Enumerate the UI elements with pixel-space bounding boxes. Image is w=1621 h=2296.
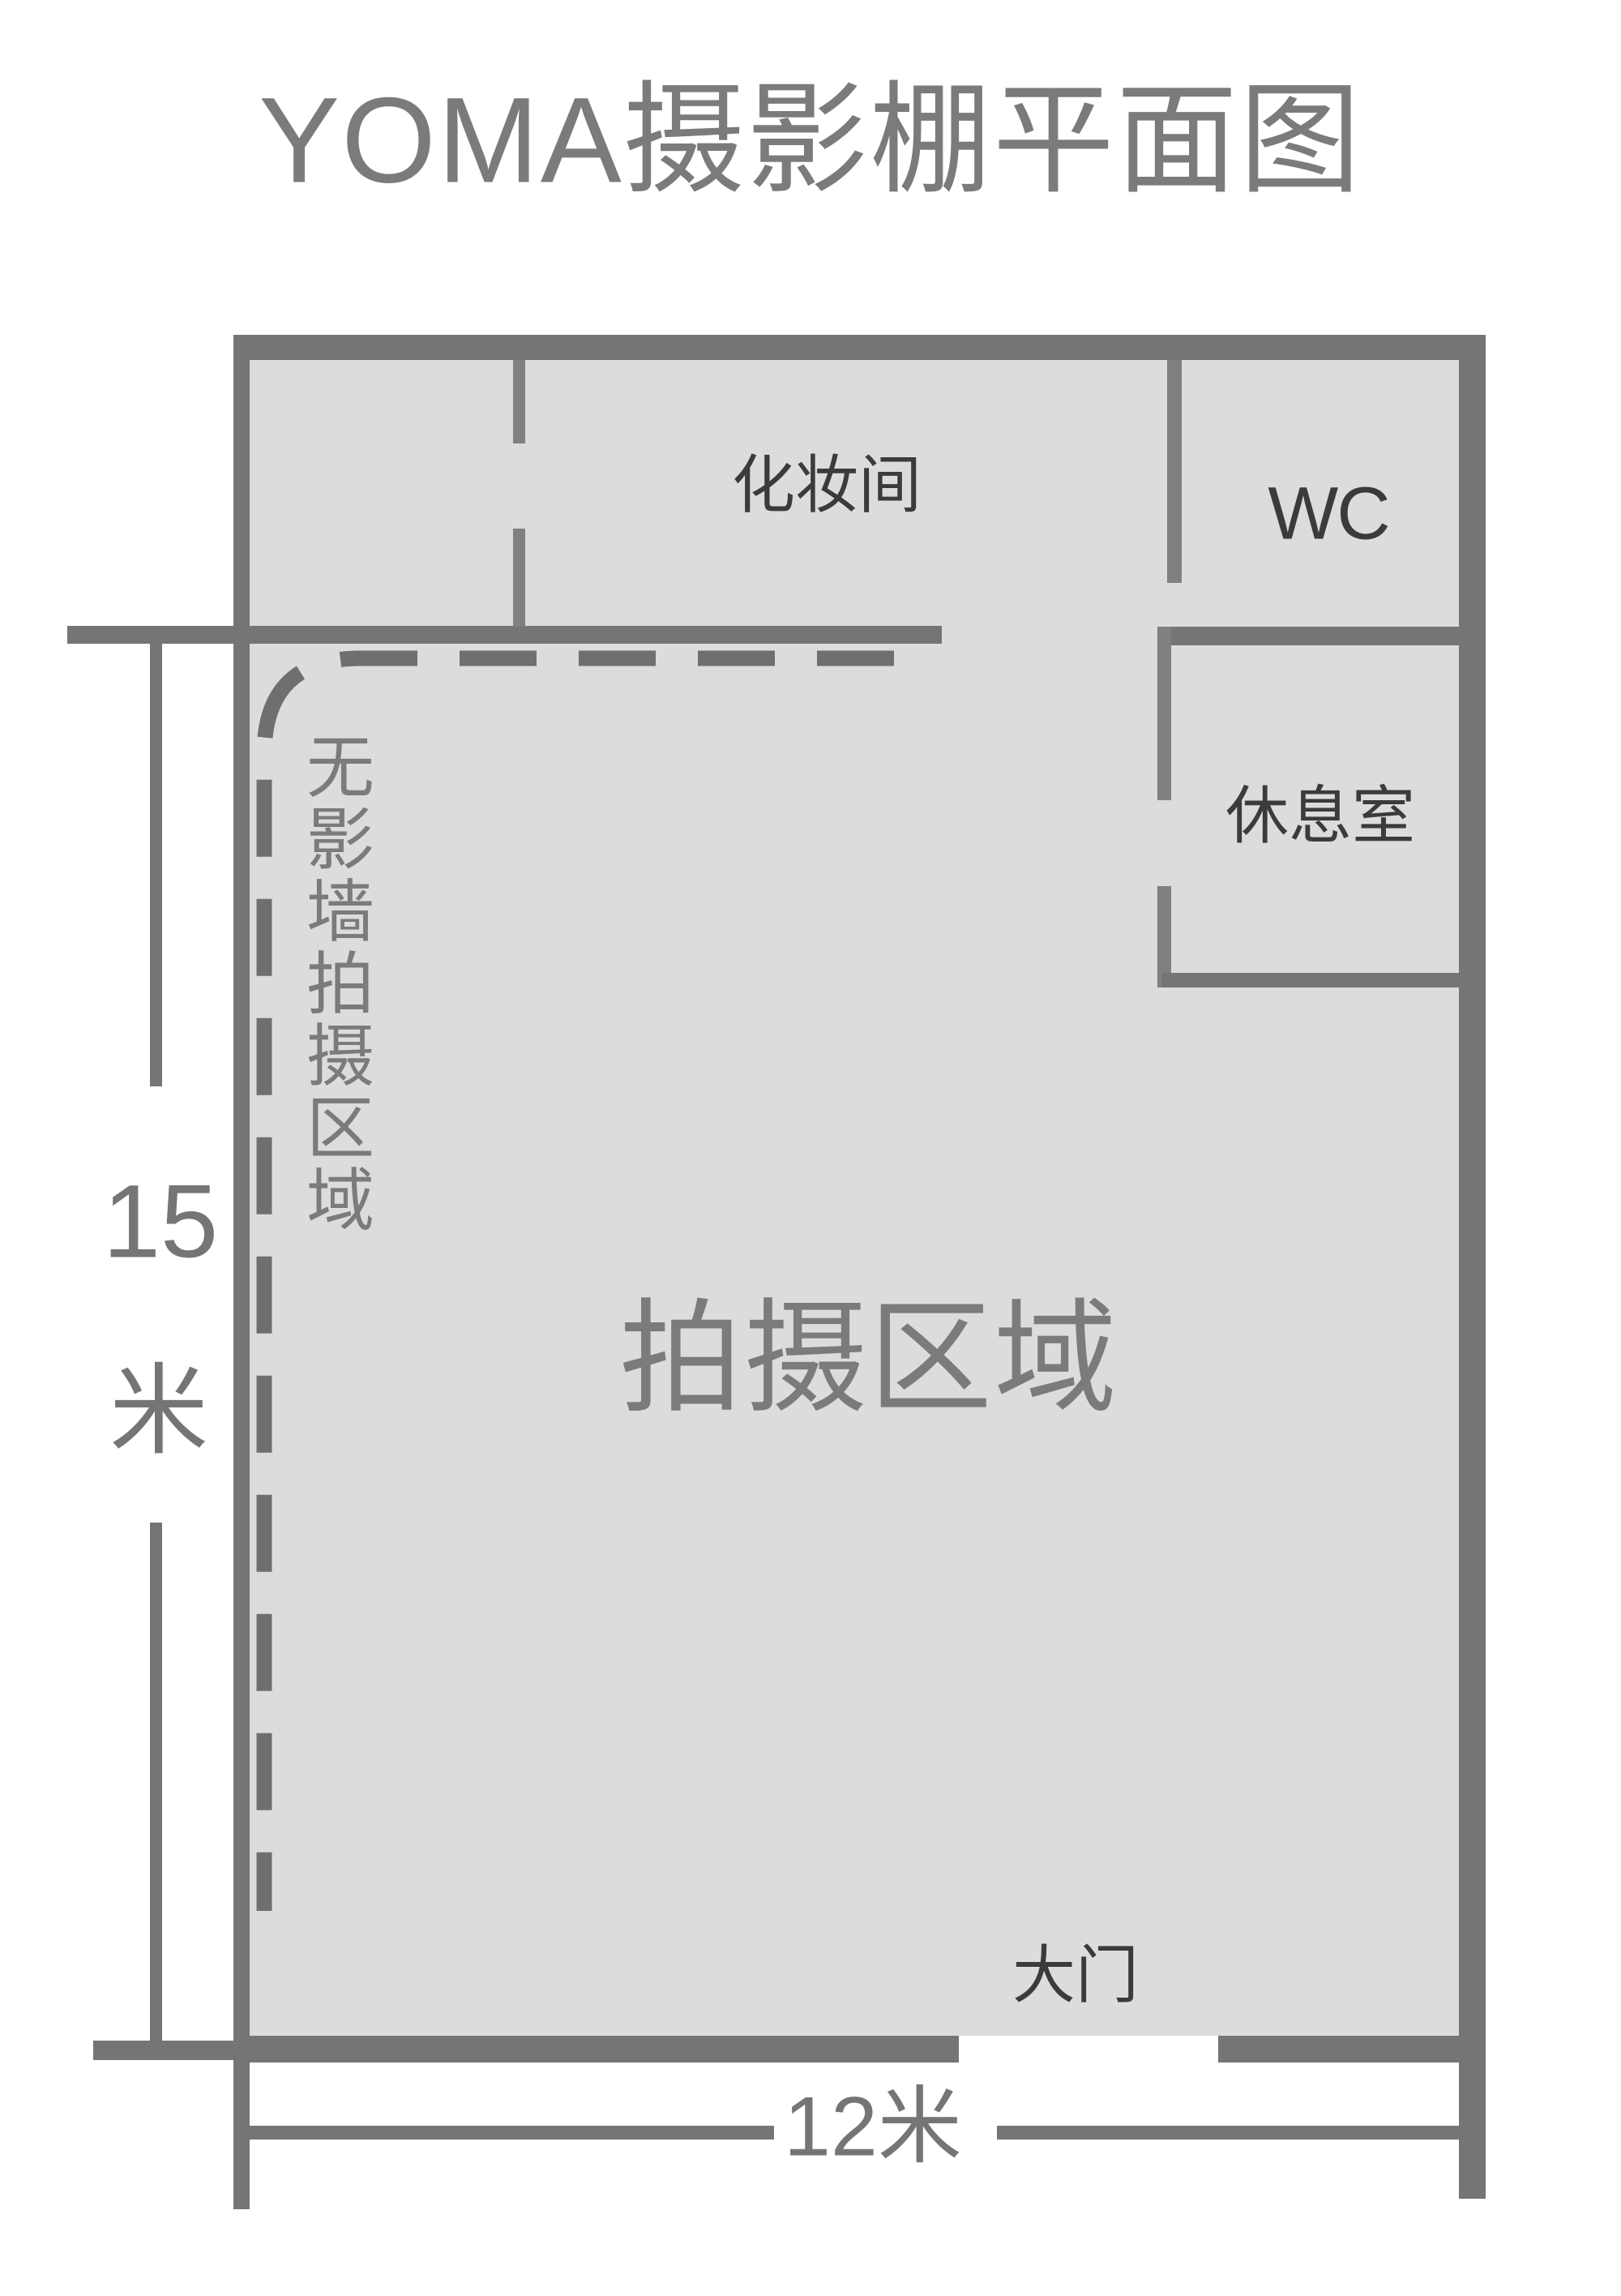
wc-room-label: WC [1268, 472, 1388, 557]
height-dimension-line-lower [150, 1523, 162, 2043]
height-dimension-unit: 米 [109, 1331, 208, 1475]
width-dimension-line-right [997, 2126, 1469, 2140]
main-gate-label: 大门 [1012, 1925, 1139, 2015]
makeup-room-label: 化妆间 [732, 435, 922, 525]
seamless-wall-dashed-outline [0, 0, 1621, 2296]
width-dimension-label: 12米 [784, 2058, 962, 2180]
seamless-wall-area-label: 无影墙拍摄区域 [287, 731, 385, 1236]
lounge-room-label: 休息室 [1225, 765, 1415, 856]
width-dimension-line-left [243, 2126, 774, 2140]
floor-plan-page: YOMA摄影棚平面图 化妆间 WC 休息室 大门 拍摄区域 无影墙拍摄区域 15… [0, 0, 1621, 2296]
dimension-cap-bottom-left [93, 2041, 233, 2060]
height-dimension-value: 15 [103, 1163, 218, 1282]
height-dimension-line-upper [150, 642, 162, 1086]
shooting-area-label: 拍摄区域 [619, 1258, 1118, 1437]
